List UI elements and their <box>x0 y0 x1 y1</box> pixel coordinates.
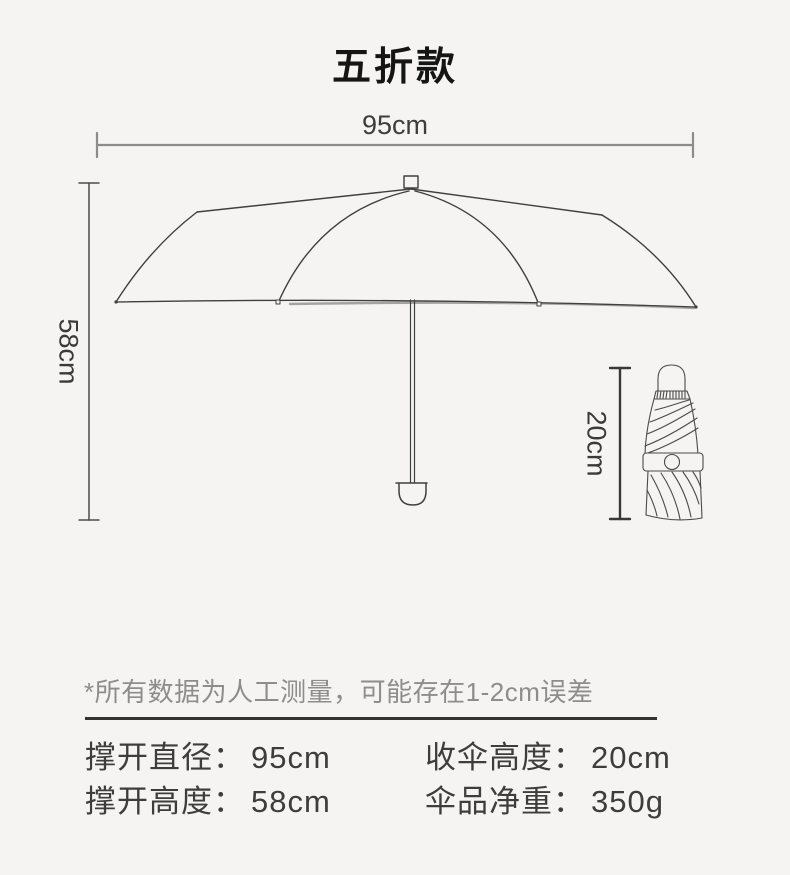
spec-value: 350g <box>591 784 664 819</box>
spec-value: 58cm <box>251 784 331 819</box>
folded-umbrella-body-upper <box>645 399 698 454</box>
spec-label: 撑开直径： <box>85 740 245 775</box>
measurement-disclaimer: *所有数据为人工测量，可能存在1-2cm误差 <box>84 672 593 709</box>
open-width-label: 95cm <box>0 110 790 141</box>
spec-folded-height: 收伞高度：20cm <box>425 742 671 773</box>
spec-label: 收伞高度： <box>425 740 585 775</box>
umbrella-canopy <box>114 176 697 309</box>
folded-umbrella-collar <box>654 391 690 399</box>
product-dimension-page: 五折款 95cm 58cm 20cm *所有数据为人工测量，可能存在1-2cm误… <box>0 0 790 875</box>
folded-umbrella-strap <box>643 453 703 471</box>
spec-label: 撑开高度： <box>85 784 245 819</box>
spec-value: 20cm <box>591 740 671 775</box>
spec-net-weight: 伞品净重：350g <box>425 786 671 817</box>
page-title: 五折款 <box>0 36 790 92</box>
strap-snap-button <box>665 455 680 470</box>
umbrella-shaft <box>411 300 415 483</box>
spec-label: 伞品净重： <box>425 784 585 819</box>
folded-umbrella-handle <box>658 365 685 391</box>
umbrella-top-cap <box>404 176 418 188</box>
divider-line <box>85 717 657 720</box>
folded-height-dimension-line <box>610 368 630 519</box>
folded-umbrella-drawing <box>643 365 703 520</box>
spec-open-height: 撑开高度：58cm <box>85 786 425 817</box>
spec-value: 95cm <box>251 740 331 775</box>
spec-open-diameter: 撑开直径：95cm <box>85 742 425 773</box>
umbrella-handle <box>396 483 427 505</box>
folded-umbrella-body-lower <box>646 471 702 520</box>
open-height-label: 58cm <box>53 307 84 397</box>
folded-height-label: 20cm <box>581 399 612 489</box>
spec-list: 撑开直径：95cm 收伞高度：20cm 撑开高度：58cm 伞品净重：350g <box>85 742 671 817</box>
